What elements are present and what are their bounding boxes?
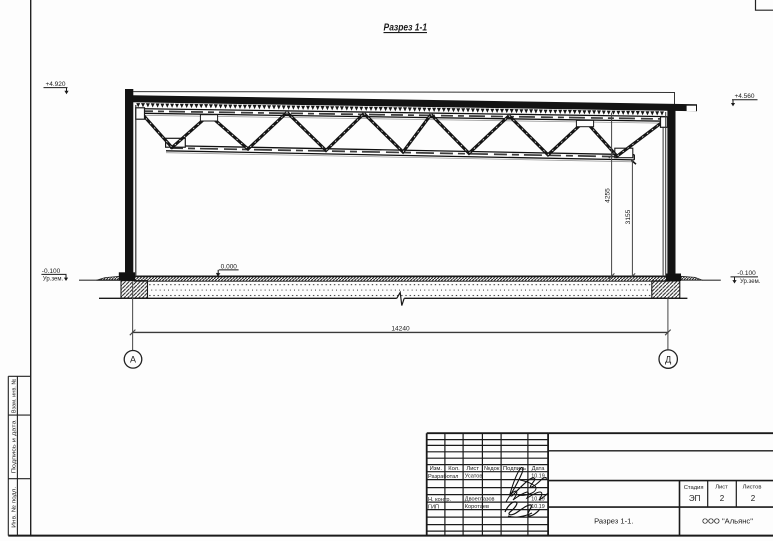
- svg-text:+4.560: +4.560: [734, 93, 754, 100]
- svg-text:Ур.зем.: Ур.зем.: [740, 279, 761, 285]
- svg-text:Д: Д: [665, 354, 671, 364]
- svg-text:Усатов: Усатов: [465, 474, 483, 480]
- svg-text:2: 2: [720, 494, 725, 503]
- svg-text:-0.100: -0.100: [737, 270, 756, 277]
- svg-text:4255: 4255: [604, 188, 611, 203]
- svg-text:0.000: 0.000: [221, 263, 238, 270]
- svg-text:3155: 3155: [625, 209, 632, 224]
- svg-text:Взам. инв. №: Взам. инв. №: [11, 379, 17, 414]
- svg-text:Двоеглазов: Двоеглазов: [465, 497, 495, 503]
- svg-text:Разрез 1-1.: Разрез 1-1.: [594, 517, 633, 526]
- svg-text:№док: №док: [484, 466, 500, 472]
- svg-text:Лист: Лист: [466, 466, 479, 472]
- svg-text:Н. контр.: Н. контр.: [428, 497, 452, 503]
- svg-text:Листов: Листов: [743, 485, 762, 491]
- svg-text:Инв. № подл.: Инв. № подл.: [11, 486, 17, 527]
- svg-text:Ур.зем.: Ур.зем.: [43, 277, 64, 283]
- svg-text:ООО "Альянс": ООО "Альянс": [702, 516, 753, 525]
- svg-text:Разработал: Разработал: [428, 474, 458, 480]
- svg-text:Стадия: Стадия: [684, 485, 704, 491]
- svg-text:Коротаев: Коротаев: [465, 504, 489, 510]
- svg-text:+4.920: +4.920: [45, 81, 65, 88]
- svg-text:2: 2: [751, 494, 756, 503]
- svg-text:А: А: [130, 355, 136, 365]
- svg-text:ГИП: ГИП: [428, 504, 439, 510]
- svg-text:14240: 14240: [391, 325, 410, 332]
- svg-text:Изм.: Изм.: [430, 466, 443, 472]
- svg-text:10.19: 10.19: [531, 504, 545, 510]
- svg-text:Дата: Дата: [532, 466, 546, 472]
- svg-text:Разрез 1-1: Разрез 1-1: [384, 23, 428, 34]
- svg-text:ЭП: ЭП: [689, 494, 701, 503]
- svg-text:Подпись и дата: Подпись и дата: [11, 419, 17, 473]
- svg-text:Кол.: Кол.: [448, 466, 460, 472]
- svg-text:Лист: Лист: [715, 485, 728, 491]
